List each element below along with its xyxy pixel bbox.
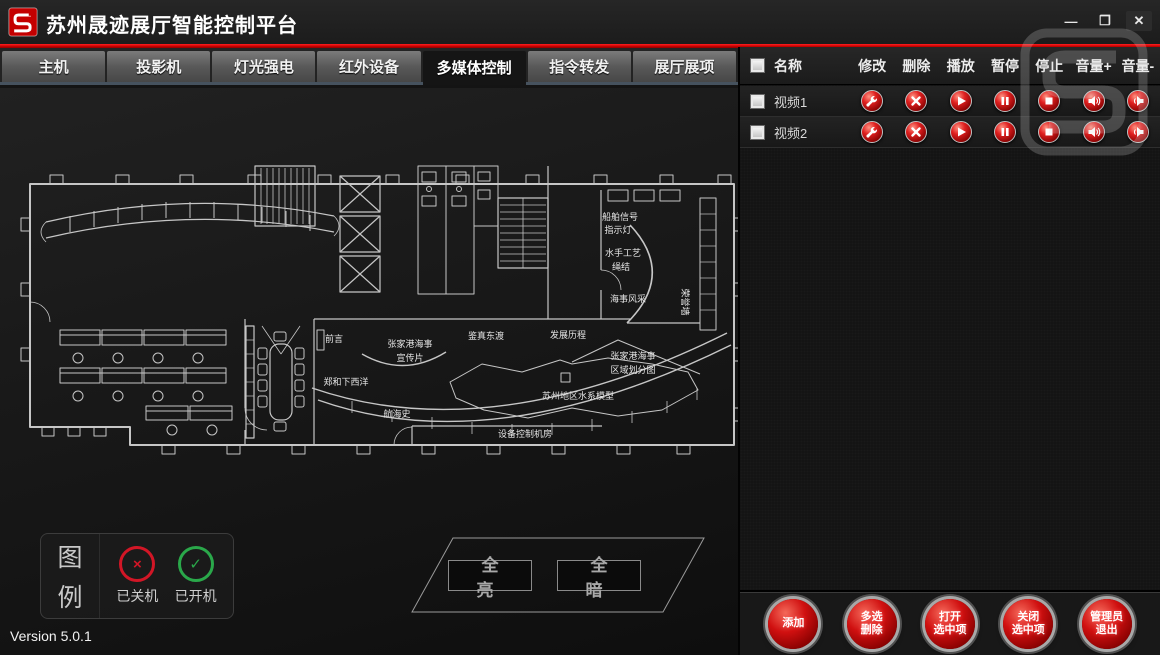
- all-bright-button[interactable]: 全 亮: [448, 560, 532, 591]
- plan-label-xuanchuan-2: 宣传片: [396, 352, 423, 363]
- brand-logo-icon: [8, 7, 38, 37]
- table-row-video1: 视频1: [740, 86, 1160, 117]
- close-icon[interactable]: ✕: [1126, 11, 1152, 31]
- action-bar: 添加 多选 删除 打开 选中项 关闭 选中项 管理员 退出: [740, 590, 1160, 655]
- col-name: 名称: [774, 56, 850, 76]
- volume-up-icon[interactable]: [1083, 90, 1105, 112]
- tab-infrared[interactable]: 红外设备: [317, 51, 420, 82]
- tab-multimedia-control[interactable]: 多媒体控制: [423, 51, 526, 85]
- legend-on-label: 已开机: [175, 586, 217, 606]
- multi-delete-button[interactable]: 多选 删除: [847, 599, 897, 649]
- legend-off-label: 已关机: [116, 586, 158, 606]
- plan-label-qianyan: 前言: [325, 333, 343, 344]
- tab-host[interactable]: 主机: [2, 51, 105, 82]
- window-controls: — ❒ ✕: [1058, 11, 1152, 31]
- table-row-video2: 视频2: [740, 117, 1160, 148]
- app-window: 苏州晟迹展厅智能控制平台 — ❒ ✕ 主机 投影机 灯光强电 红外设备 多媒体控…: [0, 0, 1160, 655]
- col-play: 播放: [939, 56, 983, 76]
- plan-label-chuanbo-1: 船舶信号: [602, 211, 638, 222]
- media-table-header: 名称 修改 删除 播放 暂停 停止 音量+ 音量-: [740, 47, 1160, 85]
- modify-wrench-icon[interactable]: [861, 90, 883, 112]
- plan-label-hanghaishi: 航海史: [383, 408, 410, 419]
- plan-label-jianzhen: 鉴真东渡: [468, 330, 504, 341]
- stop-icon[interactable]: [1038, 90, 1060, 112]
- delete-x-icon[interactable]: [905, 90, 927, 112]
- floorplan-drawing: 前言 张家港海事 宣传片 鉴真东渡 发展历程 郑和下西洋 航海史 设备控制机房 …: [12, 158, 738, 458]
- col-volume-down: 音量-: [1116, 56, 1160, 76]
- plan-label-shuishou-1: 水手工艺: [605, 247, 641, 258]
- plan-label-shuishou-2: 绳结: [612, 261, 630, 272]
- plan-label-shebei: 设备控制机房: [498, 428, 552, 439]
- plan-label-haishi-fengcai: 海事风采: [610, 293, 646, 304]
- power-on-icon: ✓: [178, 546, 214, 582]
- stop-icon[interactable]: [1038, 121, 1060, 143]
- modify-wrench-icon[interactable]: [861, 121, 883, 143]
- plan-label-xuanchuan-1: 张家港海事: [387, 338, 432, 349]
- select-all-checkbox[interactable]: [750, 58, 765, 73]
- volume-down-icon[interactable]: [1127, 90, 1149, 112]
- tab-lighting[interactable]: 灯光强电: [212, 51, 315, 82]
- col-pause: 暂停: [983, 56, 1027, 76]
- close-selected-button[interactable]: 关闭 选中项: [1003, 599, 1053, 649]
- page-title: 苏州晟迹展厅智能控制平台: [46, 9, 298, 38]
- power-off-icon: ×: [119, 546, 155, 582]
- tab-command-forward[interactable]: 指令转发: [528, 51, 631, 82]
- row-checkbox[interactable]: [750, 125, 765, 140]
- tab-exhibit-items[interactable]: 展厅展项: [633, 51, 736, 82]
- col-stop: 停止: [1027, 56, 1071, 76]
- floorplan-area: 前言 张家港海事 宣传片 鉴真东渡 发展历程 郑和下西洋 航海史 设备控制机房 …: [0, 88, 738, 655]
- delete-x-icon[interactable]: [905, 121, 927, 143]
- plan-label-shuixi: 苏州地区水系模型: [542, 390, 614, 401]
- play-icon[interactable]: [950, 90, 972, 112]
- row-name: 视频2: [774, 123, 850, 142]
- open-selected-button[interactable]: 打开 选中项: [925, 599, 975, 649]
- all-dark-button[interactable]: 全 暗: [557, 560, 641, 591]
- add-button-label: 添加: [782, 617, 804, 630]
- maximize-icon[interactable]: ❒: [1092, 11, 1118, 31]
- legend-char-top: 图: [57, 538, 82, 574]
- title-bar: 苏州晟迹展厅智能控制平台 — ❒ ✕: [0, 0, 1160, 44]
- minimize-icon[interactable]: —: [1058, 11, 1084, 31]
- legend-item-off: × 已关机: [116, 546, 158, 606]
- plan-label-fazhan: 发展历程: [550, 329, 586, 340]
- row-name: 视频1: [774, 92, 850, 111]
- tab-projector[interactable]: 投影机: [107, 51, 210, 82]
- col-volume-up: 音量+: [1071, 56, 1115, 76]
- col-modify: 修改: [850, 56, 894, 76]
- volume-up-icon[interactable]: [1083, 121, 1105, 143]
- legend-item-on: ✓ 已开机: [175, 546, 217, 606]
- play-icon[interactable]: [950, 121, 972, 143]
- legend-title: 图 例: [41, 534, 100, 618]
- add-button[interactable]: 添加: [768, 599, 818, 649]
- admin-exit-button[interactable]: 管理员 退出: [1082, 599, 1132, 649]
- pause-icon[interactable]: [994, 90, 1016, 112]
- col-delete: 删除: [894, 56, 938, 76]
- plan-label-zhenghe: 郑和下西洋: [323, 376, 368, 387]
- pause-icon[interactable]: [994, 121, 1016, 143]
- row-checkbox[interactable]: [750, 94, 765, 109]
- tab-bar: 主机 投影机 灯光强电 红外设备 多媒体控制 指令转发 展厅展项: [0, 48, 738, 85]
- plan-label-quyu-2: 区域划分图: [610, 364, 655, 375]
- plan-label-quyu-1: 张家港海事: [610, 350, 655, 361]
- legend-box: 图 例 × 已关机 ✓ 已开机: [40, 533, 234, 619]
- version-label: Version 5.0.1: [10, 628, 92, 644]
- volume-down-icon[interactable]: [1127, 121, 1149, 143]
- plan-label-rongyu: 荣誉墙: [680, 288, 691, 315]
- media-panel: 名称 修改 删除 播放 暂停 停止 音量+ 音量- 视频1 视频2: [738, 47, 1160, 655]
- legend-char-bottom: 例: [57, 578, 82, 614]
- plan-label-chuanbo-2: 指示灯: [604, 224, 631, 235]
